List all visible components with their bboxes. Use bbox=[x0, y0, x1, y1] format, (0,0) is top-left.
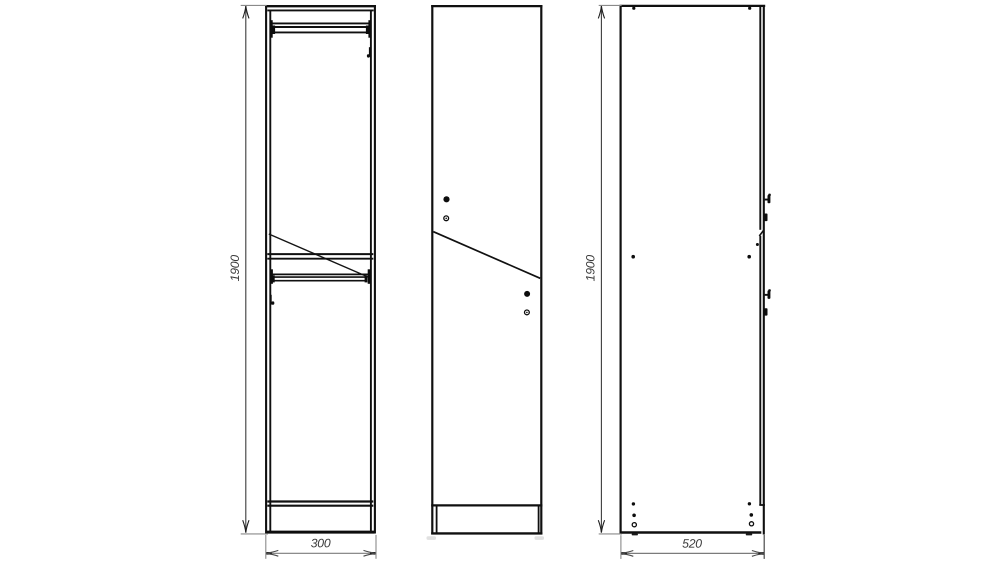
svg-text:520: 520 bbox=[682, 537, 702, 551]
svg-text:1900: 1900 bbox=[583, 255, 597, 282]
svg-text:1900: 1900 bbox=[228, 255, 242, 282]
svg-text:300: 300 bbox=[311, 536, 331, 550]
